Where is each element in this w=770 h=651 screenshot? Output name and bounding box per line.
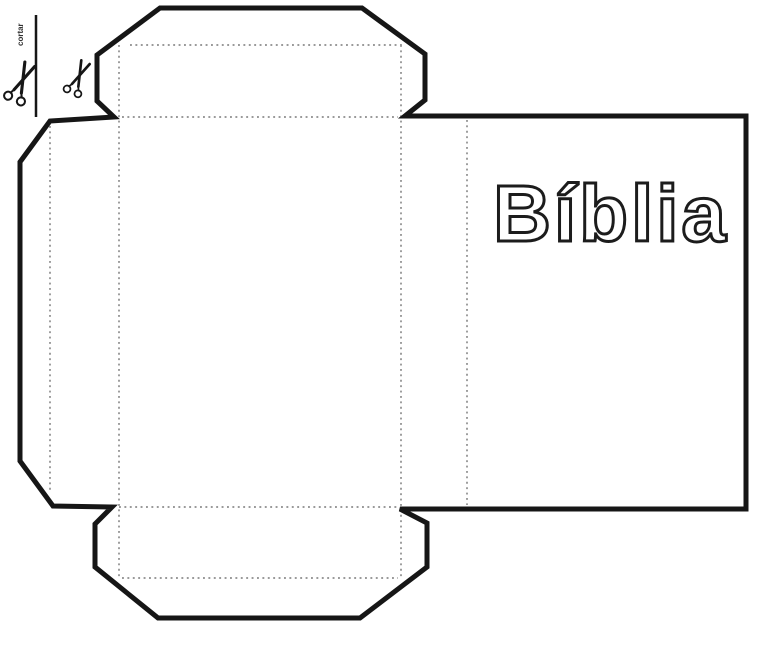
fold-lines [50,45,467,578]
papercraft-template: cortar Bíblia [0,0,770,651]
scissors-icon [62,58,94,98]
cover-title: Bíblia [493,169,729,258]
scissors-icon [3,60,40,107]
box-template-svg: cortar Bíblia [0,0,770,651]
cut-outline [20,8,746,618]
cut-label: cortar [16,23,25,46]
